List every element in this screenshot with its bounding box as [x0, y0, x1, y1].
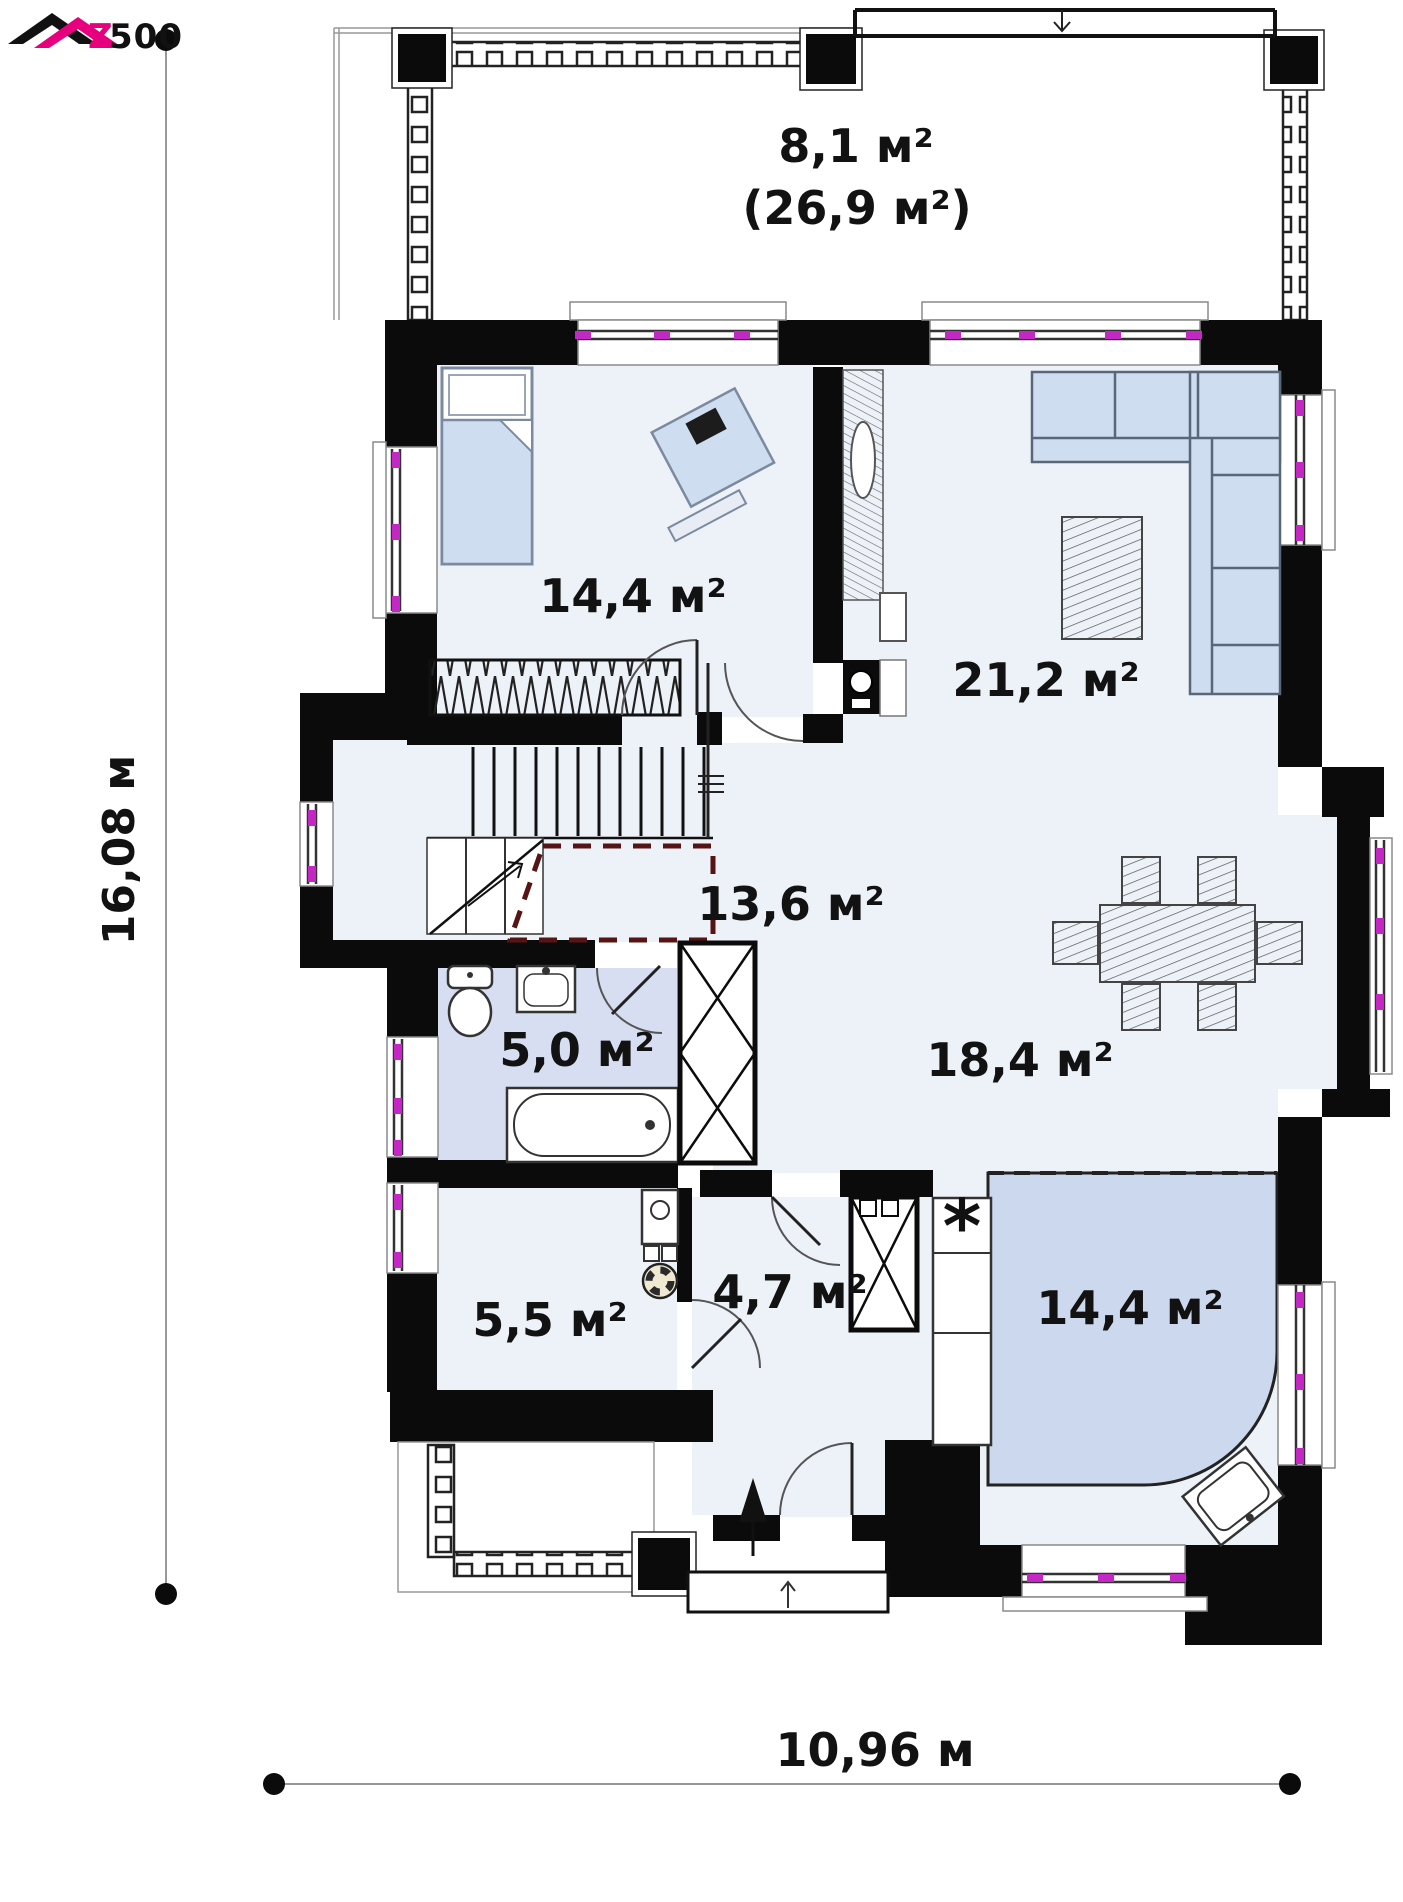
- dim-height-label: 16,08 м: [94, 755, 145, 945]
- porch-railing-left: [428, 1445, 454, 1557]
- room-label-dining: 18,4 м²: [926, 1033, 1113, 1087]
- room-label-living: 21,2 м²: [952, 653, 1139, 707]
- rug: [1062, 517, 1142, 639]
- window-living-top: [930, 320, 1200, 365]
- dining-table: [1100, 905, 1255, 982]
- room-label-bedroom: 14,4 м²: [539, 569, 726, 623]
- dim-width-label: 10,96 м: [775, 1723, 974, 1777]
- chair: [1053, 922, 1098, 964]
- sink-tap: [542, 967, 550, 975]
- washer: [642, 1190, 678, 1244]
- stove-icon: [850, 671, 872, 693]
- porch-railing-bottom: [454, 1552, 640, 1576]
- room-label-bath: 5,0 м²: [499, 1023, 654, 1077]
- window-sill: [922, 302, 1208, 320]
- window-kitchen-bottom: [1022, 1545, 1185, 1597]
- bathtub-drain: [645, 1120, 655, 1130]
- blanket: [442, 420, 532, 564]
- chair: [1122, 984, 1160, 1030]
- window-sill: [1322, 390, 1335, 550]
- closet-hall: [680, 943, 755, 1163]
- wardrobe-bedroom: [430, 660, 680, 715]
- dim-dot: [155, 1583, 177, 1605]
- canopy-arrow: [1054, 10, 1070, 31]
- chair: [1257, 922, 1302, 964]
- brand-rest: 500: [109, 17, 183, 57]
- window-sill: [1003, 1597, 1207, 1611]
- entry-floor: [713, 1442, 885, 1517]
- chair: [1122, 857, 1160, 903]
- terrace-railing-right: [1283, 84, 1307, 320]
- chair: [1198, 984, 1236, 1030]
- mirror: [851, 422, 875, 498]
- floor-plan-svg: 16,08 м 10,96 м Z 500: [0, 0, 1403, 1902]
- dim-dot: [263, 1773, 285, 1795]
- window-sill: [373, 442, 386, 618]
- room-label-terrace: 8,1 м²: [778, 119, 933, 173]
- terrace-railing-left: [408, 82, 432, 320]
- room-label-kitchen: 14,4 м²: [1036, 1281, 1223, 1335]
- canopy-outline: [855, 10, 1275, 36]
- window-bedroom-top: [578, 320, 778, 365]
- chair: [1198, 857, 1236, 903]
- floor-plan-page: 16,08 м 10,96 м Z 500: [0, 0, 1403, 1902]
- room-label-hall: 13,6 м²: [697, 877, 884, 931]
- window-sill: [1322, 1282, 1335, 1468]
- logo: Z 500: [8, 13, 183, 57]
- utility-fixtures: [642, 1190, 678, 1298]
- terrace: 8,1 м² (26,9 м²): [334, 10, 1324, 320]
- dim-dot: [1279, 1773, 1301, 1795]
- toilet: [449, 988, 491, 1036]
- porch-pillar: [638, 1538, 690, 1590]
- fireplace: [843, 660, 906, 716]
- stair-return: [427, 838, 543, 934]
- tv-stand: [880, 593, 906, 641]
- room-label-utility: 5,5 м²: [472, 1293, 627, 1347]
- fridge-symbol: *: [943, 1184, 982, 1270]
- room-label-corridor: 4,7 м²: [712, 1265, 867, 1319]
- window-bay: [1370, 838, 1392, 1074]
- pillow: [449, 375, 525, 415]
- room-label-terrace-total: (26,9 м²): [742, 181, 971, 235]
- window-sill: [570, 302, 786, 320]
- terrace-railing-top: [446, 42, 806, 66]
